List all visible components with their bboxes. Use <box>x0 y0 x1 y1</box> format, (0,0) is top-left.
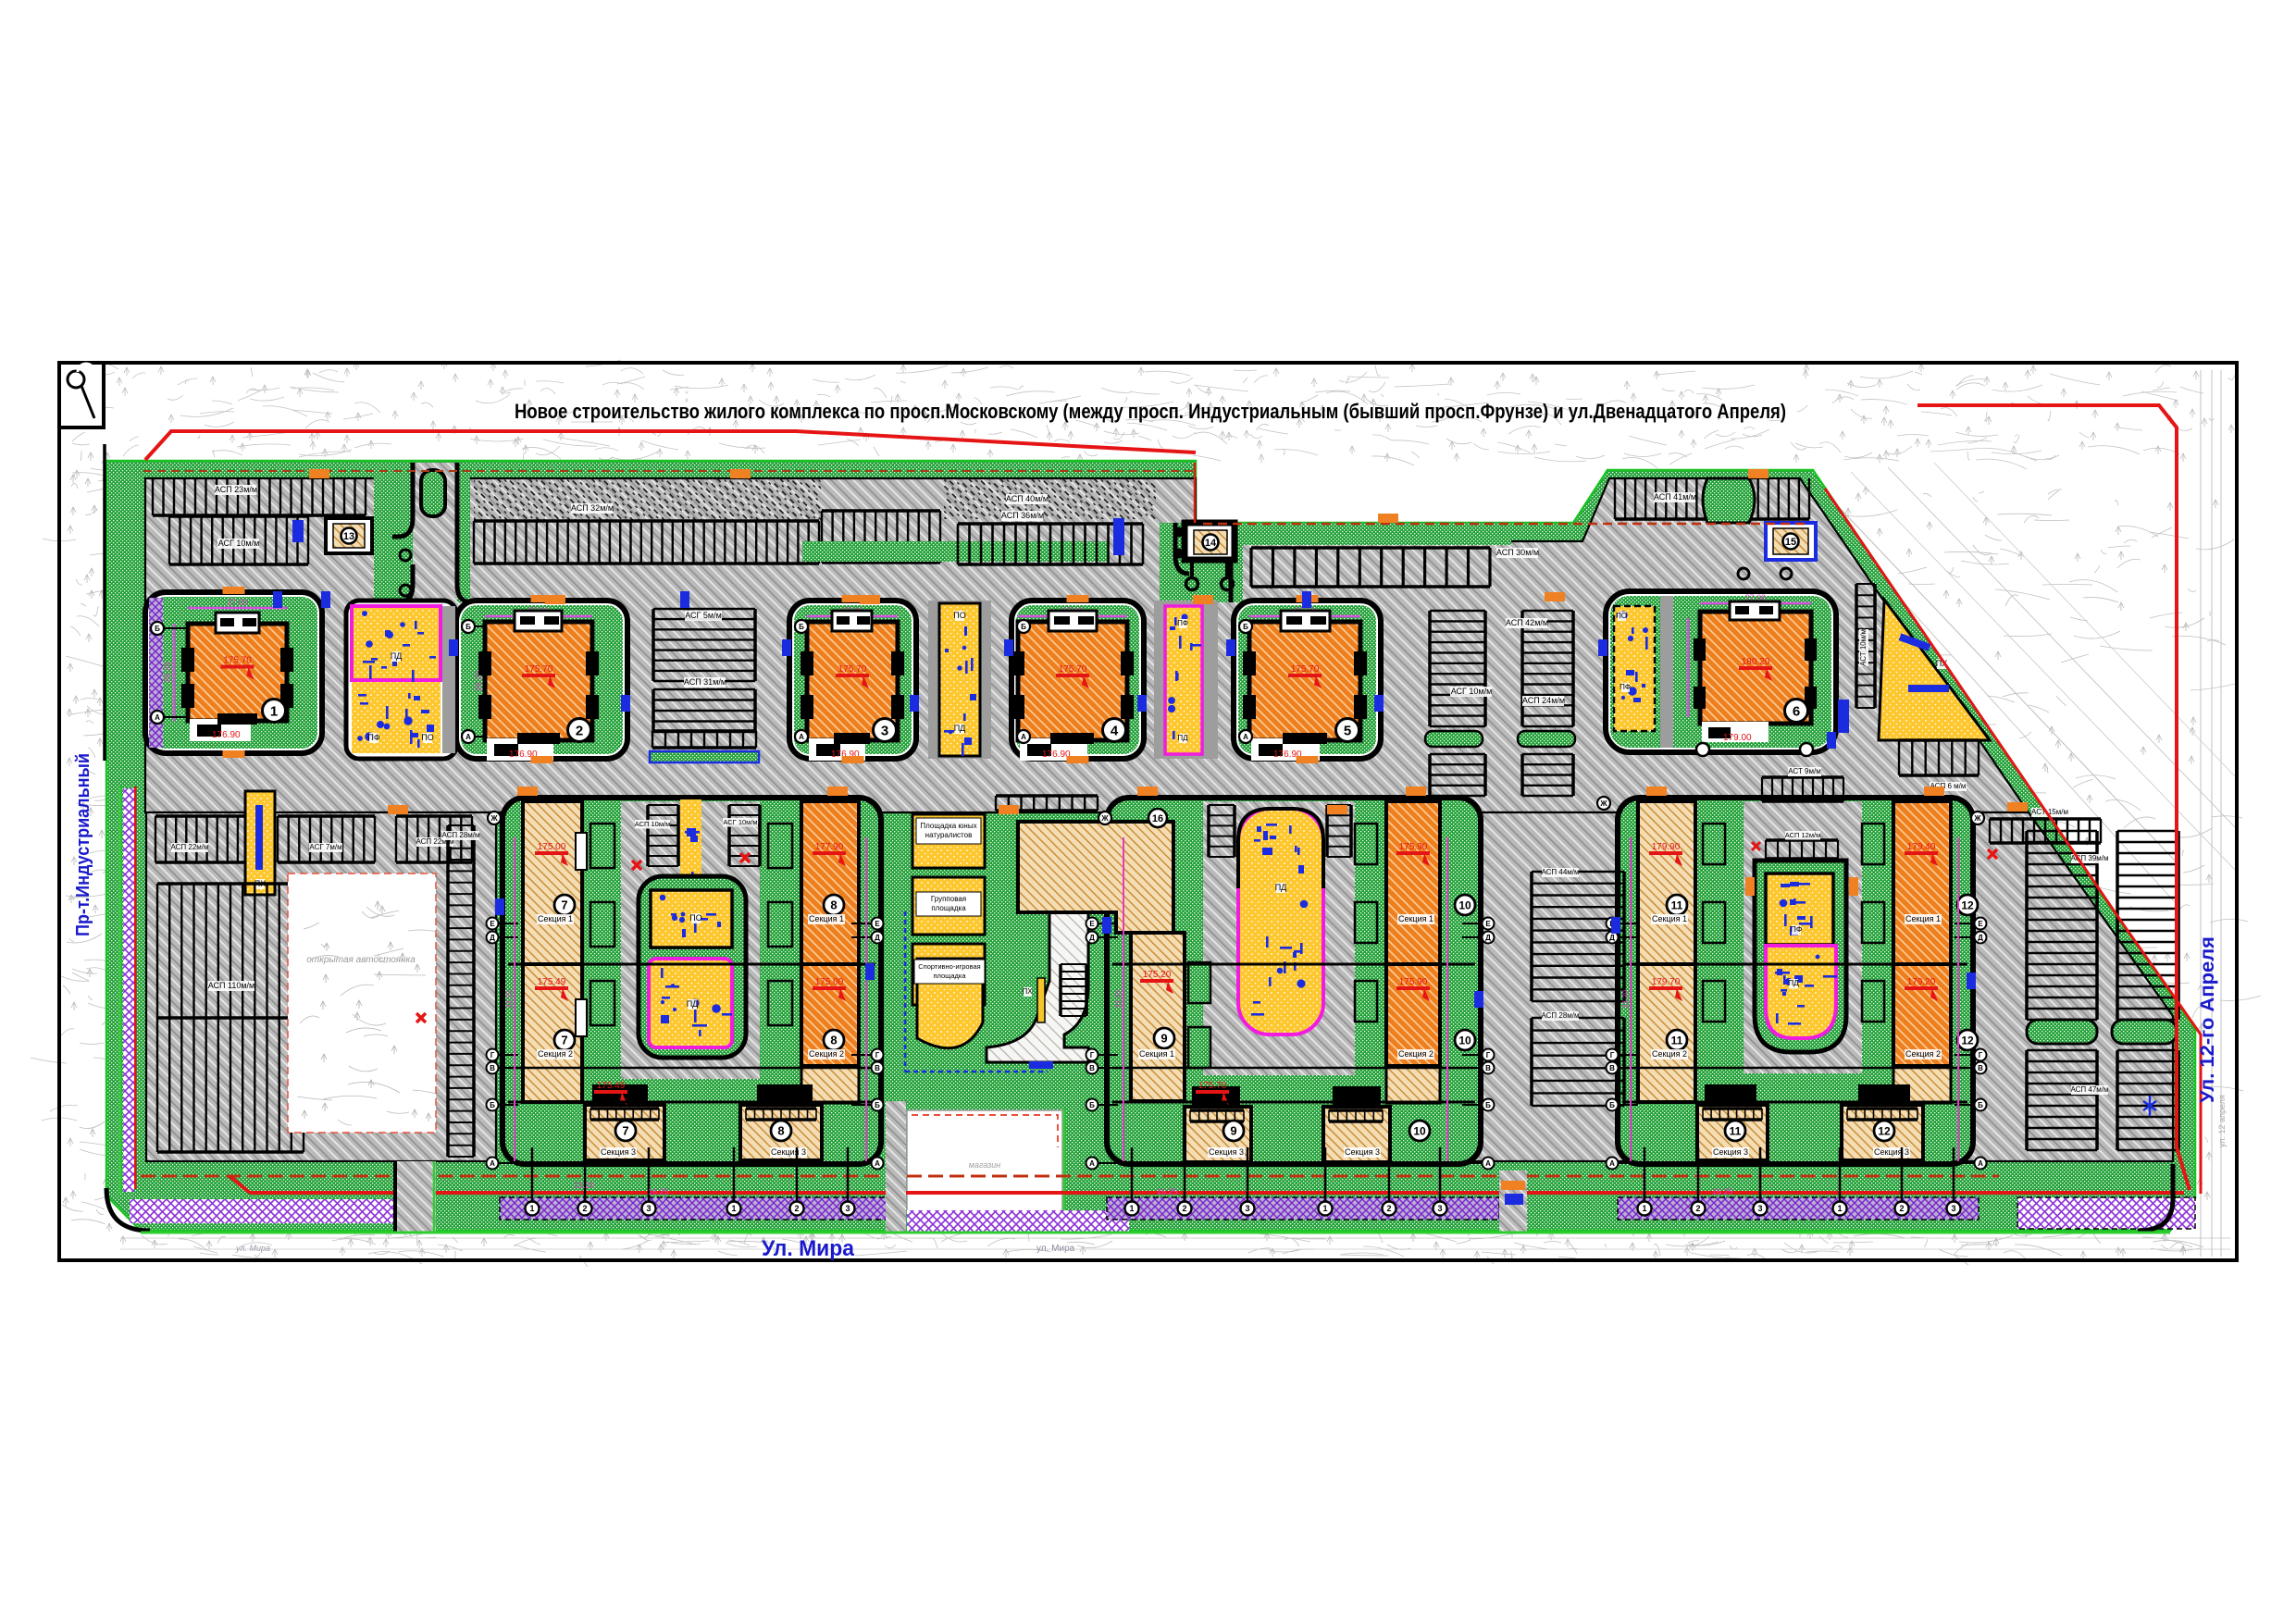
svg-text:Секция 1: Секция 1 <box>538 914 573 923</box>
svg-text:16.25: 16.25 <box>1157 1187 1178 1196</box>
svg-text:Секция 2: Секция 2 <box>1905 1049 1941 1059</box>
svg-text:175.70: 175.70 <box>223 656 252 666</box>
svg-text:Пр-т.Индустриальный: Пр-т.Индустриальный <box>73 753 93 936</box>
svg-text:ул. 12 апреля: ул. 12 апреля <box>2217 1095 2227 1147</box>
svg-text:АСП 31м/м: АСП 31м/м <box>684 677 726 687</box>
svg-text:АСП 24м/м: АСП 24м/м <box>1522 696 1565 705</box>
svg-text:Ж: Ж <box>1973 814 1981 823</box>
svg-text:26.20: 26.20 <box>163 662 172 683</box>
svg-text:АСП 36м/м: АСП 36м/м <box>1001 511 1044 520</box>
svg-text:175.90: 175.90 <box>1399 842 1428 852</box>
svg-text:Б: Б <box>490 1101 495 1109</box>
svg-text:2: 2 <box>1386 1204 1391 1213</box>
svg-text:Д: Д <box>1089 934 1095 942</box>
svg-text:13.20: 13.20 <box>574 1181 595 1190</box>
svg-text:В: В <box>490 1064 495 1072</box>
svg-text:175.49: 175.49 <box>597 1081 626 1091</box>
svg-text:А: А <box>875 1159 880 1168</box>
svg-text:8: 8 <box>830 1034 837 1047</box>
svg-text:магазин: магазин <box>969 1160 1001 1170</box>
svg-text:Спортивно-игровая: Спортивно-игровая <box>918 962 980 971</box>
svg-text:Ж: Ж <box>1100 814 1109 823</box>
svg-text:А: А <box>1089 1159 1095 1168</box>
svg-text:АСГ 5м/м: АСГ 5м/м <box>685 611 722 620</box>
svg-text:Е: Е <box>1978 920 1983 928</box>
svg-text:175.00: 175.00 <box>538 842 566 852</box>
svg-text:3: 3 <box>1951 1204 1955 1213</box>
svg-text:Секция 3: Секция 3 <box>1345 1147 1380 1157</box>
svg-text:33.20: 33.20 <box>1114 989 1123 1009</box>
svg-text:АСГ 10м/м: АСГ 10м/м <box>218 539 260 548</box>
svg-text:1: 1 <box>1322 1204 1327 1213</box>
svg-text:ПФ: ПФ <box>1620 683 1631 691</box>
svg-text:АСГ 7м/м: АСГ 7м/м <box>309 843 341 851</box>
svg-text:ПД: ПД <box>954 724 966 733</box>
svg-text:Д: Д <box>1978 934 1983 942</box>
svg-text:АСП 47м/м: АСП 47м/м <box>2070 1085 2108 1094</box>
svg-text:ПД: ПД <box>687 999 699 1009</box>
svg-text:11: 11 <box>1730 1124 1742 1137</box>
svg-text:Секция 3: Секция 3 <box>601 1147 636 1157</box>
svg-text:Секция 2: Секция 2 <box>538 1049 573 1059</box>
svg-text:8: 8 <box>830 898 837 912</box>
svg-text:ПД: ПД <box>1275 883 1287 892</box>
svg-text:10: 10 <box>1458 898 1471 911</box>
svg-text:АСТ 9м/м: АСТ 9м/м <box>1788 767 1820 775</box>
svg-text:8: 8 <box>777 1124 784 1138</box>
svg-text:Б: Б <box>1243 623 1248 631</box>
svg-text:АСП 10м/м: АСП 10м/м <box>635 820 670 828</box>
svg-text:ПФ: ПФ <box>1177 619 1188 627</box>
svg-text:175.20: 175.20 <box>1143 970 1172 980</box>
svg-text:3: 3 <box>1437 1204 1442 1213</box>
svg-text:7: 7 <box>622 1124 628 1138</box>
svg-text:3: 3 <box>1245 1204 1249 1213</box>
svg-text:АСП 23м/м: АСП 23м/м <box>215 485 257 494</box>
svg-text:1: 1 <box>1129 1204 1134 1213</box>
svg-text:175.70: 175.70 <box>525 664 553 675</box>
svg-text:2: 2 <box>1695 1204 1700 1213</box>
svg-text:Е: Е <box>490 920 495 928</box>
svg-text:В: В <box>875 1064 880 1072</box>
svg-text:7: 7 <box>561 1034 567 1047</box>
svg-text:6: 6 <box>1793 703 1800 719</box>
svg-text:АСГ 10м/м: АСГ 10м/м <box>1451 687 1493 696</box>
svg-text:5: 5 <box>1344 723 1351 738</box>
svg-text:16: 16 <box>1152 813 1163 824</box>
svg-text:ПД: ПД <box>1788 978 1799 987</box>
svg-text:3: 3 <box>1757 1204 1762 1213</box>
svg-text:Ул. 12-го Апреля: Ул. 12-го Апреля <box>2197 936 2218 1103</box>
svg-text:В: В <box>1978 1064 1983 1072</box>
svg-text:площадка: площадка <box>931 904 966 912</box>
svg-text:Д: Д <box>875 934 880 942</box>
svg-text:175.70: 175.70 <box>1291 664 1320 675</box>
svg-text:ПД: ПД <box>1177 734 1188 742</box>
svg-text:ПФ: ПФ <box>367 733 379 742</box>
svg-text:площадка: площадка <box>933 972 966 980</box>
svg-text:12: 12 <box>1961 898 1974 911</box>
svg-text:ПО: ПО <box>689 913 701 923</box>
svg-text:Б: Б <box>1485 1101 1491 1109</box>
svg-text:11: 11 <box>1671 1034 1683 1047</box>
svg-text:3: 3 <box>881 723 888 738</box>
svg-text:33.20: 33.20 <box>1621 989 1630 1009</box>
svg-text:А: А <box>465 733 471 741</box>
svg-text:Б: Б <box>799 623 804 631</box>
svg-text:Секция 1: Секция 1 <box>1139 1049 1174 1059</box>
svg-text:Б: Б <box>1609 1101 1615 1109</box>
svg-text:Секция 3: Секция 3 <box>1874 1147 1909 1157</box>
svg-text:179.40: 179.40 <box>1907 842 1936 852</box>
svg-text:12: 12 <box>1961 1034 1974 1047</box>
svg-text:2: 2 <box>1182 1204 1186 1213</box>
svg-text:В: В <box>1609 1064 1615 1072</box>
svg-text:АСТ 10м/м: АСТ 10м/м <box>1859 629 1868 666</box>
svg-text:Новое строительство жилого ком: Новое строительство жилого комплекса по … <box>515 400 1786 423</box>
svg-text:4: 4 <box>1111 723 1119 738</box>
svg-text:АСП 28м/м: АСП 28м/м <box>1541 1011 1579 1020</box>
svg-text:АСП 110м/м: АСП 110м/м <box>208 981 255 990</box>
svg-text:АСП 32м/м: АСП 32м/м <box>571 503 614 513</box>
svg-text:9: 9 <box>1230 1124 1236 1138</box>
svg-text:Б: Б <box>875 1101 880 1109</box>
svg-text:Секция 3: Секция 3 <box>771 1147 806 1157</box>
svg-text:15: 15 <box>1785 537 1796 548</box>
svg-text:А: А <box>155 713 160 722</box>
svg-text:27.00: 27.00 <box>227 598 248 607</box>
svg-text:Секция 1: Секция 1 <box>1398 914 1433 923</box>
svg-text:АСП 44м/м: АСП 44м/м <box>1541 868 1579 876</box>
svg-text:ПХ: ПХ <box>1022 987 1033 996</box>
svg-text:1: 1 <box>529 1204 534 1213</box>
svg-text:АСП 12м/м: АСП 12м/м <box>1785 831 1820 839</box>
svg-text:1: 1 <box>1642 1204 1646 1213</box>
svg-text:Ж: Ж <box>490 814 498 823</box>
svg-text:3: 3 <box>646 1204 651 1213</box>
svg-text:А: А <box>1609 1159 1615 1168</box>
svg-text:Секция 1: Секция 1 <box>1905 914 1941 923</box>
svg-text:Б: Б <box>1978 1101 1983 1109</box>
svg-text:16.25: 16.25 <box>1712 1187 1733 1196</box>
svg-text:А: А <box>1243 733 1248 741</box>
svg-text:Секция 2: Секция 2 <box>1398 1049 1433 1059</box>
svg-text:175.70: 175.70 <box>838 664 867 675</box>
svg-text:Ул. Мира: Ул. Мира <box>762 1236 855 1261</box>
svg-text:ул. Мира: ул. Мира <box>1036 1244 1075 1254</box>
svg-text:Площадка юных: Площадка юных <box>920 822 976 830</box>
svg-text:2: 2 <box>576 723 583 738</box>
svg-text:176.90: 176.90 <box>1042 750 1071 760</box>
svg-text:Секция 2: Секция 2 <box>1652 1049 1687 1059</box>
svg-text:АСП 41м/м: АСП 41м/м <box>1654 492 1696 502</box>
svg-text:10: 10 <box>1413 1124 1426 1137</box>
svg-text:16.25: 16.25 <box>648 1187 669 1196</box>
svg-text:1: 1 <box>270 703 278 719</box>
svg-text:Е: Е <box>1089 920 1095 928</box>
svg-text:А: А <box>1978 1159 1983 1168</box>
svg-text:Г: Г <box>1090 1051 1095 1059</box>
svg-text:Секция 1: Секция 1 <box>1652 914 1687 923</box>
svg-text:Д: Д <box>1609 934 1615 942</box>
svg-text:Е: Е <box>875 920 880 928</box>
svg-text:10: 10 <box>1458 1034 1471 1047</box>
svg-text:3: 3 <box>845 1204 850 1213</box>
svg-text:Б: Б <box>1089 1101 1095 1109</box>
svg-text:открытая автостоянка: открытая автостоянка <box>306 955 416 965</box>
svg-text:В: В <box>1485 1064 1491 1072</box>
svg-text:179.70: 179.70 <box>1652 977 1681 987</box>
svg-text:АСП 42м/м: АСП 42м/м <box>1506 618 1548 627</box>
svg-text:А: А <box>1021 733 1026 741</box>
svg-text:14: 14 <box>1205 538 1217 549</box>
svg-text:АСГ 10м/м: АСГ 10м/м <box>723 818 757 826</box>
svg-text:1: 1 <box>731 1204 736 1213</box>
svg-text:Секция 3: Секция 3 <box>1713 1147 1748 1157</box>
svg-text:АСП 40м/м: АСП 40м/м <box>1006 494 1049 503</box>
svg-text:ПД: ПД <box>391 651 403 661</box>
svg-text:175.49: 175.49 <box>538 977 566 987</box>
svg-text:Секция 2: Секция 2 <box>809 1049 844 1059</box>
svg-text:АСП 30м/м: АСП 30м/м <box>1496 548 1539 557</box>
svg-text:2: 2 <box>1899 1204 1904 1213</box>
svg-text:А: А <box>799 733 804 741</box>
svg-text:13: 13 <box>343 531 354 542</box>
svg-text:2: 2 <box>582 1204 587 1213</box>
svg-text:Г: Г <box>875 1051 880 1059</box>
svg-text:33.20: 33.20 <box>505 989 514 1009</box>
svg-text:Ж: Ж <box>1599 799 1607 808</box>
svg-text:12: 12 <box>1878 1124 1891 1137</box>
svg-text:Г: Г <box>1979 1051 1983 1059</box>
svg-text:ПО: ПО <box>421 733 433 742</box>
svg-text:177.90: 177.90 <box>815 842 844 852</box>
svg-text:175.70: 175.70 <box>1059 664 1087 675</box>
svg-text:175.90: 175.90 <box>1399 977 1428 987</box>
svg-text:Б: Б <box>1021 623 1026 631</box>
svg-text:А: А <box>490 1159 495 1168</box>
svg-text:Е: Е <box>1485 920 1491 928</box>
svg-text:179.00: 179.00 <box>1723 733 1752 743</box>
svg-text:1: 1 <box>1837 1204 1842 1213</box>
svg-text:А: А <box>1485 1159 1491 1168</box>
svg-text:Д: Д <box>490 934 495 942</box>
svg-text:180.20: 180.20 <box>1742 657 1770 667</box>
svg-text:Секция 3: Секция 3 <box>1209 1147 1244 1157</box>
svg-text:ПО: ПО <box>953 611 965 620</box>
svg-text:натуралистов: натуралистов <box>925 831 973 839</box>
svg-text:Д: Д <box>1485 934 1491 942</box>
svg-text:176.90: 176.90 <box>212 730 241 740</box>
svg-text:7: 7 <box>561 898 567 912</box>
svg-text:2: 2 <box>794 1204 799 1213</box>
svg-text:179.20: 179.20 <box>1907 977 1936 987</box>
svg-text:Г: Г <box>1486 1051 1491 1059</box>
svg-text:179.90: 179.90 <box>1652 842 1681 852</box>
svg-text:Б: Б <box>155 625 160 633</box>
svg-text:Групповая: Групповая <box>931 895 966 903</box>
svg-text:Г: Г <box>1610 1051 1615 1059</box>
svg-text:ПО: ПО <box>1616 612 1627 620</box>
svg-text:ул. Мира: ул. Мира <box>235 1244 270 1253</box>
svg-text:175.00: 175.00 <box>815 977 844 987</box>
svg-text:11: 11 <box>1671 898 1683 911</box>
svg-text:ПФ: ПФ <box>1791 924 1803 934</box>
svg-text:Г: Г <box>490 1051 495 1059</box>
svg-text:В: В <box>1089 1064 1095 1072</box>
svg-text:АСП 22м/м: АСП 22м/м <box>170 843 208 851</box>
svg-text:Секция 1: Секция 1 <box>809 914 844 923</box>
svg-text:9: 9 <box>1160 1032 1167 1046</box>
svg-text:175.70: 175.70 <box>1198 1081 1227 1091</box>
svg-text:АСП 28м/м: АСП 28м/м <box>441 831 479 839</box>
svg-text:Б: Б <box>465 623 471 631</box>
